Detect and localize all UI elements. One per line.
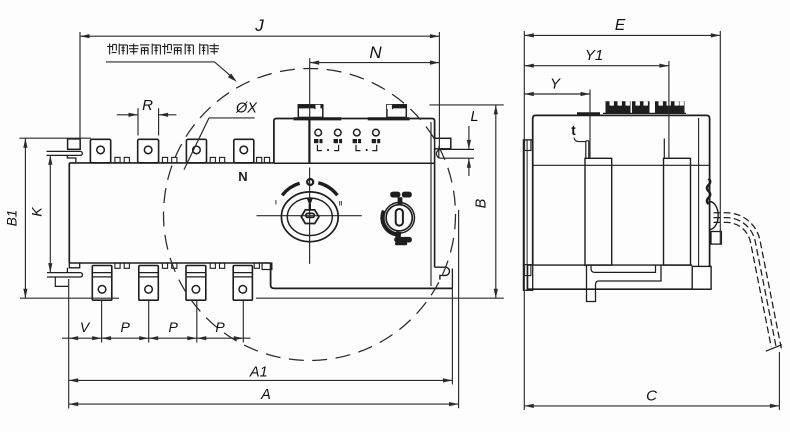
svg-text:N: N [238,169,247,184]
svg-text:V: V [80,319,91,335]
svg-text:A: A [260,387,271,403]
svg-text:t: t [571,123,576,138]
svg-text:P: P [121,319,131,335]
svg-text:B: B [474,198,490,208]
svg-text:R: R [142,97,153,114]
svg-text:K: K [29,207,45,217]
svg-text:C: C [646,388,657,405]
svg-text:L: L [470,109,478,125]
svg-text:P: P [169,319,179,335]
svg-text:Y1: Y1 [585,47,603,64]
svg-text:ØX: ØX [235,101,258,117]
svg-text:J: J [254,16,264,35]
svg-text:N: N [369,43,382,62]
svg-text:II: II [339,202,343,208]
svg-text:P: P [215,319,225,335]
svg-text:E: E [615,17,626,34]
svg-text:I: I [275,201,277,207]
svg-text:A1: A1 [249,365,268,381]
svg-text:Y: Y [550,76,561,93]
svg-text:B1: B1 [5,210,20,227]
